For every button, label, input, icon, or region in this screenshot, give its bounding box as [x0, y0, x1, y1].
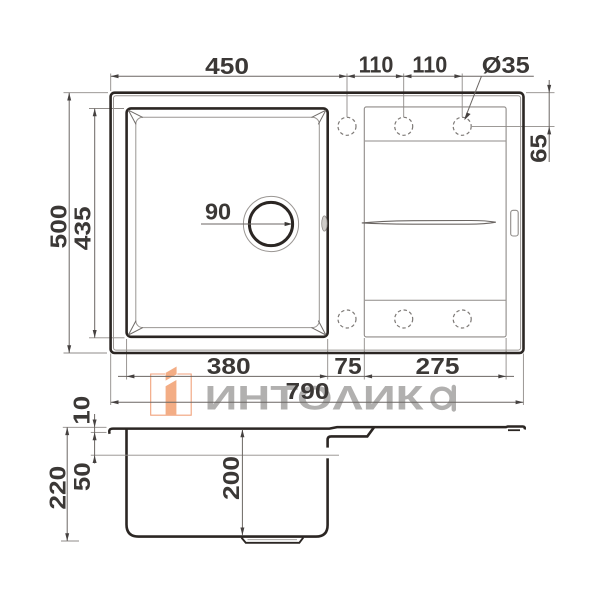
svg-text:220: 220	[45, 466, 71, 510]
svg-text:110: 110	[359, 52, 394, 78]
svg-text:50: 50	[70, 462, 96, 491]
svg-text:790: 790	[286, 378, 330, 404]
svg-text:275: 275	[416, 353, 460, 379]
svg-text:200: 200	[218, 456, 244, 500]
svg-text:65: 65	[526, 134, 552, 163]
svg-text:Ø35: Ø35	[482, 53, 530, 79]
svg-text:110: 110	[412, 52, 447, 78]
svg-text:10: 10	[70, 396, 96, 425]
svg-text:90: 90	[205, 199, 231, 225]
svg-text:500: 500	[46, 205, 72, 249]
svg-text:380: 380	[207, 353, 251, 379]
svg-text:75: 75	[334, 354, 361, 380]
svg-text:450: 450	[205, 53, 249, 79]
svg-text:435: 435	[70, 206, 96, 250]
